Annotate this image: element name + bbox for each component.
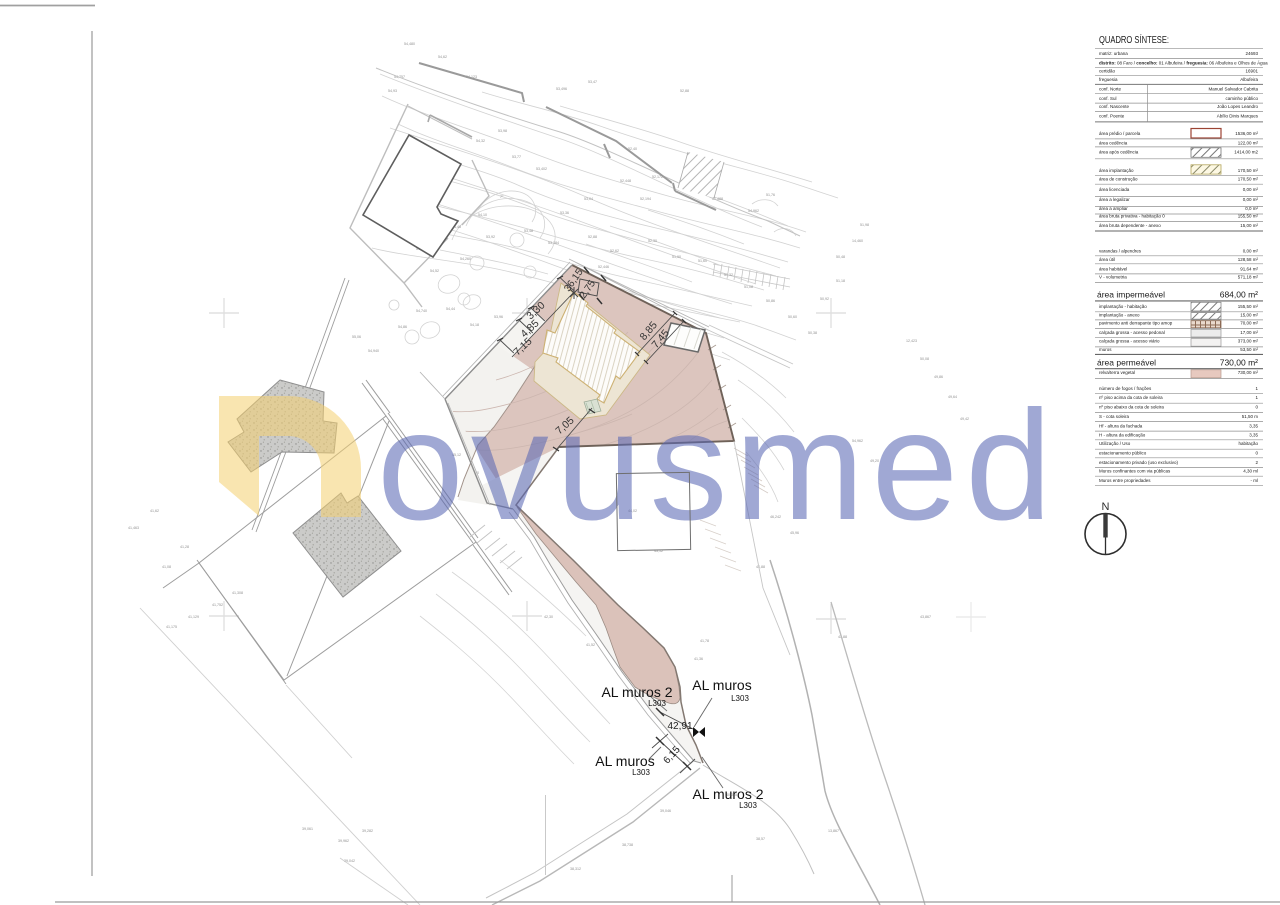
svg-text:70,00 m²: 70,00 m² <box>1240 320 1258 325</box>
svg-text:0,00 m²: 0,00 m² <box>1243 187 1259 192</box>
svg-text:51,98: 51,98 <box>860 223 869 227</box>
svg-text:52,448: 52,448 <box>620 179 631 183</box>
svg-text:freguesia: freguesia <box>1099 77 1118 82</box>
svg-text:L303: L303 <box>632 768 650 777</box>
svg-text:42,91: 42,91 <box>667 721 692 732</box>
svg-text:39,061: 39,061 <box>302 827 313 831</box>
svg-text:conf. Sul: conf. Sul <box>1099 96 1117 101</box>
svg-text:ovusmed: ovusmed <box>377 379 1059 553</box>
svg-text:51,50 m: 51,50 m <box>1242 414 1259 419</box>
svg-text:50,48: 50,48 <box>836 255 845 259</box>
svg-text:41,78: 41,78 <box>700 639 709 643</box>
svg-text:52,88: 52,88 <box>680 89 689 93</box>
svg-text:área a ampliar: área a ampliar <box>1099 206 1128 211</box>
svg-text:571,18 m²: 571,18 m² <box>1238 274 1259 279</box>
svg-text:53,48: 53,48 <box>524 229 533 233</box>
svg-text:53,04: 53,04 <box>584 197 593 201</box>
svg-text:S - cota soleira: S - cota soleira <box>1099 414 1130 419</box>
svg-text:91,64 m²: 91,64 m² <box>1240 267 1258 272</box>
svg-text:área prédio / parcela: área prédio / parcela <box>1099 131 1141 136</box>
svg-text:2: 2 <box>1255 460 1258 465</box>
svg-text:41,308: 41,308 <box>232 591 243 595</box>
svg-text:54,740: 54,740 <box>416 309 427 313</box>
svg-text:certidão: certidão <box>1099 68 1116 73</box>
svg-text:0: 0 <box>1255 451 1258 456</box>
svg-text:53,184: 53,184 <box>548 241 559 245</box>
svg-text:38,57: 38,57 <box>756 837 765 841</box>
svg-text:42,30: 42,30 <box>544 615 553 619</box>
svg-text:684,00 m²: 684,00 m² <box>1220 290 1258 300</box>
svg-text:170,50 m²: 170,50 m² <box>1238 177 1259 182</box>
svg-text:3,35: 3,35 <box>1249 423 1258 428</box>
svg-text:área após cedência: área após cedência <box>1099 149 1139 154</box>
svg-text:1: 1 <box>1255 395 1258 400</box>
svg-text:pavimento anti derrapante tipo: pavimento anti derrapante tipo amop <box>1099 320 1173 325</box>
svg-text:L303: L303 <box>731 694 749 703</box>
svg-text:41,36: 41,36 <box>694 657 703 661</box>
svg-text:1414,00 m2: 1414,00 m2 <box>1234 149 1258 154</box>
svg-text:área cedência: área cedência <box>1099 141 1128 146</box>
svg-text:0,00 m²: 0,00 m² <box>1243 197 1259 202</box>
svg-text:13,867: 13,867 <box>828 829 839 833</box>
svg-text:estacionamento público: estacionamento público <box>1099 451 1147 456</box>
svg-text:área impermeável: área impermeável <box>1097 290 1165 300</box>
svg-text:conf. Nascente: conf. Nascente <box>1099 104 1130 109</box>
svg-text:53,496: 53,496 <box>556 87 567 91</box>
svg-text:38,312: 38,312 <box>570 867 581 871</box>
svg-text:14,460: 14,460 <box>852 239 863 243</box>
svg-text:41,08: 41,08 <box>162 565 171 569</box>
svg-text:0,0 m²: 0,0 m² <box>1245 206 1258 211</box>
svg-text:41,52: 41,52 <box>586 643 595 647</box>
svg-text:373,00 m²: 373,00 m² <box>1238 338 1259 343</box>
svg-text:41,175: 41,175 <box>166 625 177 629</box>
svg-text:calçada grossa - acesso pedona: calçada grossa - acesso pedonal <box>1099 330 1165 335</box>
svg-text:estacionamento privado (uso ex: estacionamento privado (uso exclusivo) <box>1099 460 1179 465</box>
svg-text:calçada grossa - acesso viário: calçada grossa - acesso viário <box>1099 338 1160 343</box>
svg-text:730,00 m²: 730,00 m² <box>1220 357 1258 367</box>
svg-text:54,62: 54,62 <box>438 55 447 59</box>
svg-text:0,00 m²: 0,00 m² <box>1243 249 1259 254</box>
svg-text:3,35: 3,35 <box>1249 433 1258 438</box>
svg-text:V - volumetria: V - volumetria <box>1099 274 1127 279</box>
svg-text:área implantação: área implantação <box>1099 168 1134 173</box>
svg-text:área útil: área útil <box>1099 257 1115 262</box>
svg-text:50,92: 50,92 <box>820 297 829 301</box>
svg-text:41,62: 41,62 <box>150 509 159 513</box>
svg-text:155,50 m²: 155,50 m² <box>1238 214 1259 219</box>
svg-text:43,867: 43,867 <box>920 615 931 619</box>
svg-text:52,446: 52,446 <box>598 265 609 269</box>
svg-text:39,046: 39,046 <box>660 809 671 813</box>
svg-text:52,88: 52,88 <box>588 235 597 239</box>
svg-text:53,36: 53,36 <box>560 211 569 215</box>
svg-text:L303: L303 <box>648 699 666 708</box>
svg-text:51,32: 51,32 <box>724 273 733 277</box>
svg-text:H - altura da edificação: H - altura da edificação <box>1099 433 1146 438</box>
svg-text:Utilização / Uso: Utilização / Uso <box>1099 441 1131 446</box>
svg-text:55,06: 55,06 <box>352 335 361 339</box>
svg-text:41,752: 41,752 <box>212 603 223 607</box>
svg-text:4,30 ml: 4,30 ml <box>1243 469 1258 474</box>
svg-text:caminho público: caminho público <box>1225 96 1258 101</box>
svg-text:52,30: 52,30 <box>648 239 657 243</box>
svg-text:41,129: 41,129 <box>188 615 199 619</box>
svg-text:54,44: 54,44 <box>446 307 455 311</box>
svg-text:QUADRO SÍNTESE:: QUADRO SÍNTESE: <box>1099 33 1169 46</box>
svg-text:matriz: urbana: matriz: urbana <box>1099 51 1128 56</box>
svg-text:área bruta dependente - anexo: área bruta dependente - anexo <box>1099 223 1161 228</box>
svg-text:128,58 m²: 128,58 m² <box>1238 257 1259 262</box>
svg-text:170,50 m²: 170,50 m² <box>1238 168 1259 173</box>
svg-text:N: N <box>1102 501 1110 513</box>
svg-text:Hf - altura da fachada: Hf - altura da fachada <box>1099 423 1143 428</box>
svg-text:AL muros 2: AL muros 2 <box>601 684 672 700</box>
svg-text:Muros confinantes com via públ: Muros confinantes com via públicas <box>1099 469 1171 474</box>
svg-text:51,18: 51,18 <box>836 279 845 283</box>
svg-text:52,62: 52,62 <box>610 249 619 253</box>
svg-text:varandas / alpendres: varandas / alpendres <box>1099 249 1142 254</box>
svg-text:17,00 m²: 17,00 m² <box>1240 330 1258 335</box>
svg-text:área permeável: área permeável <box>1097 357 1156 367</box>
svg-text:53,402: 53,402 <box>536 167 547 171</box>
svg-text:51,60: 51,60 <box>698 259 707 263</box>
svg-text:51,90: 51,90 <box>672 255 681 259</box>
svg-text:54,93: 54,93 <box>388 89 397 93</box>
svg-text:24693: 24693 <box>1245 51 1258 56</box>
svg-text:41,463: 41,463 <box>128 526 139 530</box>
svg-text:122,00 m²: 122,00 m² <box>1238 141 1259 146</box>
svg-text:relva/terra vegetal: relva/terra vegetal <box>1099 370 1135 375</box>
svg-text:53,92: 53,92 <box>486 235 495 239</box>
svg-text:L303: L303 <box>739 801 757 810</box>
svg-text:53,47: 53,47 <box>588 80 597 84</box>
svg-text:6,15: 6,15 <box>662 744 683 766</box>
svg-text:51,76: 51,76 <box>766 193 775 197</box>
svg-text:nº piso acima da cota de solei: nº piso acima da cota de soleira <box>1099 395 1163 400</box>
svg-text:53,50 m²: 53,50 m² <box>1240 347 1258 352</box>
svg-text:7°: 7° <box>500 195 504 199</box>
svg-text:área a legalizar: área a legalizar <box>1099 197 1130 202</box>
svg-text:área licenciada: área licenciada <box>1099 187 1130 192</box>
svg-text:15,00 m²: 15,00 m² <box>1240 223 1258 228</box>
svg-text:39,282: 39,282 <box>362 829 373 833</box>
svg-text:Abílio Dinis Marques: Abílio Dinis Marques <box>1217 114 1259 119</box>
svg-text:50,08: 50,08 <box>920 357 929 361</box>
svg-text:38,738: 38,738 <box>622 843 633 847</box>
svg-text:52,194: 52,194 <box>640 197 651 201</box>
svg-text:distrito: 08 Faro / concelho:: distrito: 08 Faro / concelho: 01 Albufei… <box>1099 60 1268 66</box>
svg-text:53,96: 53,96 <box>494 315 503 319</box>
svg-text:área bruta privativa - habitaç: área bruta privativa - habitação 0 <box>1099 214 1165 219</box>
svg-text:54,18: 54,18 <box>470 323 479 327</box>
svg-text:54,940: 54,940 <box>368 349 379 353</box>
svg-text:implantação - anexo: implantação - anexo <box>1099 313 1140 318</box>
svg-text:área habitável: área habitável <box>1099 267 1127 272</box>
svg-text:1536,00 m²: 1536,00 m² <box>1235 131 1258 136</box>
svg-text:AL muros: AL muros <box>692 677 751 693</box>
svg-text:53,98: 53,98 <box>498 129 507 133</box>
svg-text:João Lopes Leandro: João Lopes Leandro <box>1217 104 1259 109</box>
svg-text:54,962: 54,962 <box>748 209 759 213</box>
svg-text:área de construção: área de construção <box>1099 177 1138 182</box>
svg-text:39,962: 39,962 <box>338 839 349 843</box>
svg-text:16901: 16901 <box>1245 68 1258 73</box>
svg-text:41,28: 41,28 <box>180 545 189 549</box>
svg-text:50,60: 50,60 <box>788 315 797 319</box>
svg-text:Manuel Salvador Cabrita: Manuel Salvador Cabrita <box>1208 87 1258 92</box>
svg-text:54,10: 54,10 <box>478 213 487 217</box>
svg-text:- ml: - ml <box>1251 478 1259 483</box>
svg-text:12,423: 12,423 <box>906 339 917 343</box>
svg-text:54,32: 54,32 <box>476 139 485 143</box>
svg-text:número de fogos / frações: número de fogos / frações <box>1099 386 1152 391</box>
svg-text:0: 0 <box>1255 405 1258 410</box>
svg-text:44,88: 44,88 <box>756 565 765 569</box>
svg-text:1: 1 <box>1255 386 1258 391</box>
svg-text:50,86: 50,86 <box>766 299 775 303</box>
svg-text:habitação: habitação <box>1238 441 1258 446</box>
svg-text:15,00 m²: 15,00 m² <box>1240 313 1258 318</box>
svg-text:54,86: 54,86 <box>398 325 407 329</box>
svg-text:54,260: 54,260 <box>460 257 471 261</box>
svg-text:54,52: 54,52 <box>430 269 439 273</box>
svg-text:155,50 m²: 155,50 m² <box>1238 304 1259 309</box>
svg-text:Albufeira: Albufeira <box>1240 77 1258 82</box>
svg-text:Muros entre propriedades: Muros entre propriedades <box>1099 478 1151 483</box>
svg-text:AL muros: AL muros <box>595 753 654 769</box>
svg-text:54,480: 54,480 <box>404 42 415 46</box>
svg-text:implantação - habitação: implantação - habitação <box>1099 304 1147 309</box>
svg-text:muros: muros <box>1099 347 1112 352</box>
svg-text:51,08: 51,08 <box>744 285 753 289</box>
svg-text:nº piso abaixo da cota de sole: nº piso abaixo da cota de soleira <box>1099 405 1164 410</box>
svg-text:AL muros 2: AL muros 2 <box>692 786 763 802</box>
svg-text:50,38: 50,38 <box>808 331 817 335</box>
svg-text:conf. Norte: conf. Norte <box>1099 87 1122 92</box>
svg-text:53,77: 53,77 <box>512 155 521 159</box>
svg-text:conf. Poente: conf. Poente <box>1099 114 1125 119</box>
svg-text:730,00 m²: 730,00 m² <box>1238 370 1259 375</box>
